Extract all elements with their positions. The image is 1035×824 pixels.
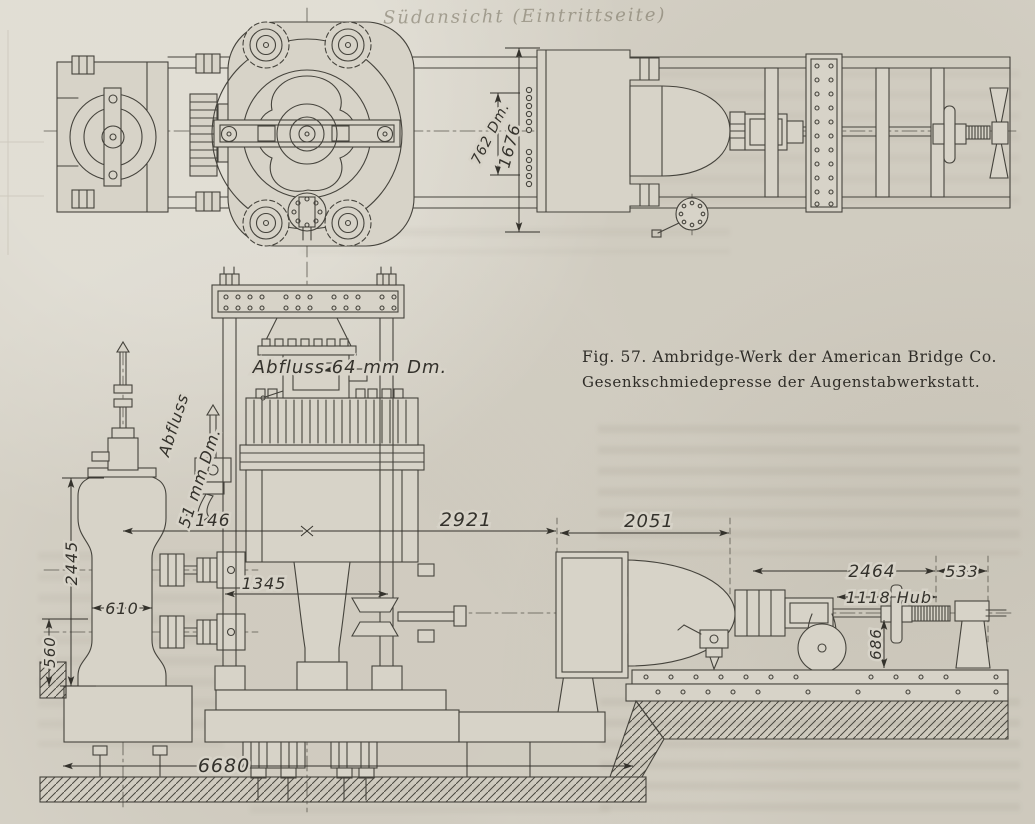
- plan-view: [44, 8, 1016, 258]
- dim-533: 533: [945, 562, 979, 581]
- bolt-row: [526, 87, 531, 186]
- dim-2051: 2051: [624, 511, 674, 532]
- caption-line-1: Fig. 57. Ambridge-Werk der American Brid…: [582, 348, 997, 366]
- elevation-view: [40, 262, 1014, 812]
- figure-caption: Fig. 57. Ambridge-Werk der American Brid…: [582, 348, 997, 391]
- dimensions: 1676 762 Dm. 2146 2921 2051 1345 2445 61…: [41, 48, 987, 777]
- press-elevation: [205, 267, 605, 800]
- dim-6680: 6680: [198, 755, 250, 777]
- dim-2921: 2921: [440, 509, 492, 531]
- dim-1118-hub: 1118 Hub: [846, 588, 932, 607]
- figure-57-drawing: 1676 762 Dm. 2146 2921 2051 1345 2445 61…: [0, 0, 1035, 824]
- dim-686: 686: [867, 628, 885, 660]
- dim-610: 610: [105, 599, 139, 618]
- margin-rules: [0, 30, 44, 255]
- dim-1345: 1345: [242, 574, 287, 593]
- drawback-cylinder-unit: [556, 552, 1008, 712]
- scanned-book-page: Südansicht (Eintrittseite): [0, 0, 1035, 824]
- dim-2445: 2445: [62, 541, 81, 586]
- dim-560: 560: [41, 636, 59, 668]
- dim-2464: 2464: [848, 562, 895, 582]
- caption-line-2: Gesenkschmiedepresse der Augenstabwerkst…: [582, 373, 980, 391]
- label-abfluss: Abfluss: [154, 391, 192, 460]
- label-abfluss-64: Abfluss 64 mm Dm.: [252, 357, 448, 378]
